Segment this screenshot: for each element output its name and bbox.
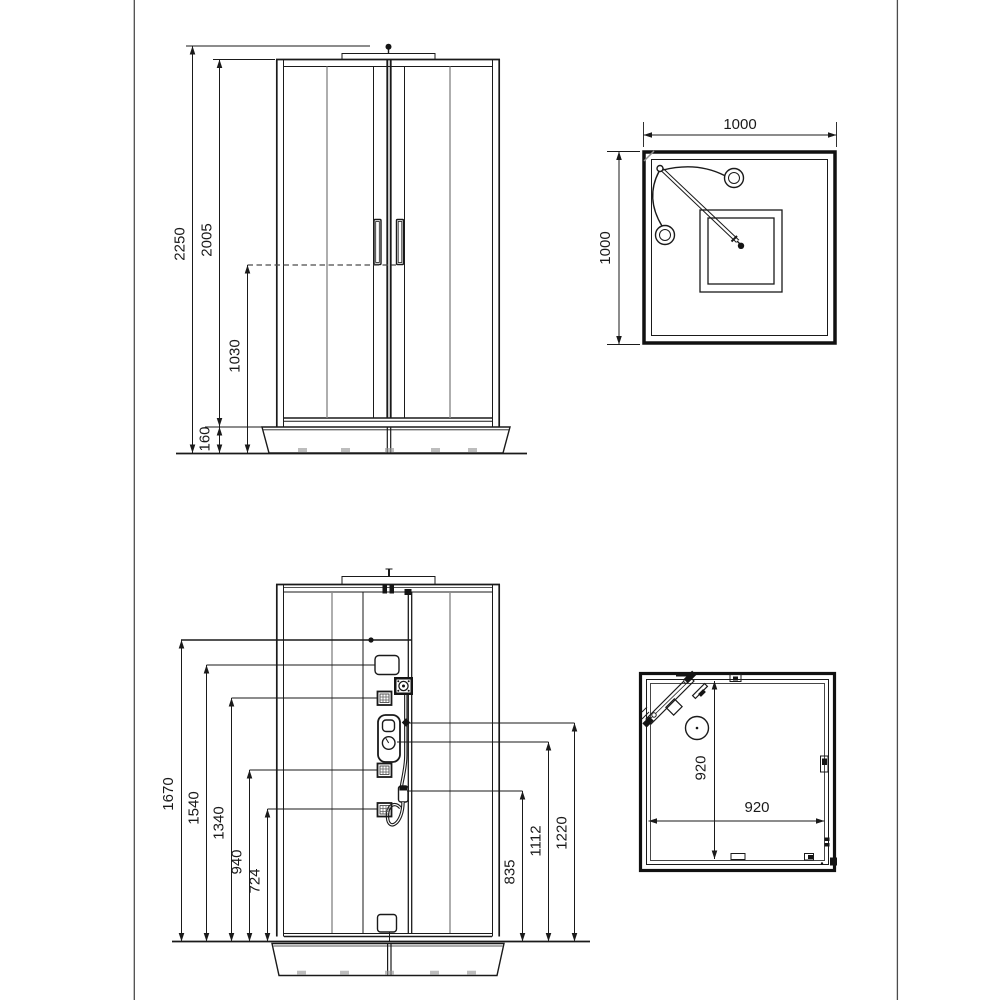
massage-jet-middle [378, 764, 392, 778]
front-interior-dimensions-left: 1670 1540 1340 940 724 [160, 640, 378, 942]
dim-plan-depth: 1000 [597, 231, 614, 264]
interior-tray [272, 944, 504, 976]
plan-interior-view: 920 920 [641, 671, 838, 871]
technical-drawing-sheet: 2250 2005 1030 160 [0, 0, 1000, 1000]
dim-inner-width: 920 [744, 799, 769, 816]
dim-tray-height: 160 [197, 426, 214, 451]
shower-head-plan [725, 169, 744, 188]
diverter-knob [383, 720, 395, 732]
dim-inner-depth: 920 [693, 755, 710, 780]
shower-tray [262, 427, 510, 453]
hose-holder-bracket [402, 718, 410, 726]
dim-1540: 1540 [186, 791, 203, 824]
dim-handle-height: 1030 [227, 339, 244, 372]
roof-knob [386, 44, 392, 50]
interior-frame [276, 585, 500, 937]
control-panel [378, 715, 400, 762]
front-interior-view: 1670 1540 1340 940 724 1220 1112 835 [160, 569, 590, 976]
sliding-doors [327, 59, 450, 418]
dim-1670: 1670 [160, 777, 177, 810]
panel-bottom-box [378, 915, 397, 933]
massage-jet-top [378, 692, 392, 706]
door-handle-left [374, 220, 381, 265]
dim-940: 940 [229, 849, 246, 874]
panel-top-box [375, 656, 399, 675]
dim-1112: 1112 [528, 825, 545, 856]
dim-total-height: 2250 [172, 227, 189, 260]
dim-724: 724 [247, 868, 264, 893]
corner-pivot [657, 166, 663, 172]
dim-1340: 1340 [211, 806, 228, 839]
plan-exterior-view: 1000 1000 [597, 116, 837, 345]
overhead-shower-mount [394, 677, 413, 695]
front-exterior-view: 2250 2005 1030 160 [172, 44, 528, 454]
door-handle-right [397, 220, 404, 265]
dim-1220: 1220 [554, 816, 571, 849]
hand-shower-holder-plan [656, 226, 675, 245]
dim-plan-width: 1000 [723, 116, 756, 133]
dim-835: 835 [502, 859, 519, 884]
dim-door-height: 2005 [199, 223, 216, 256]
front-interior-dimensions-right: 1220 1112 835 [397, 723, 575, 942]
shower-panel [375, 656, 413, 942]
interior-roof [342, 569, 435, 585]
back-wall [181, 585, 450, 933]
